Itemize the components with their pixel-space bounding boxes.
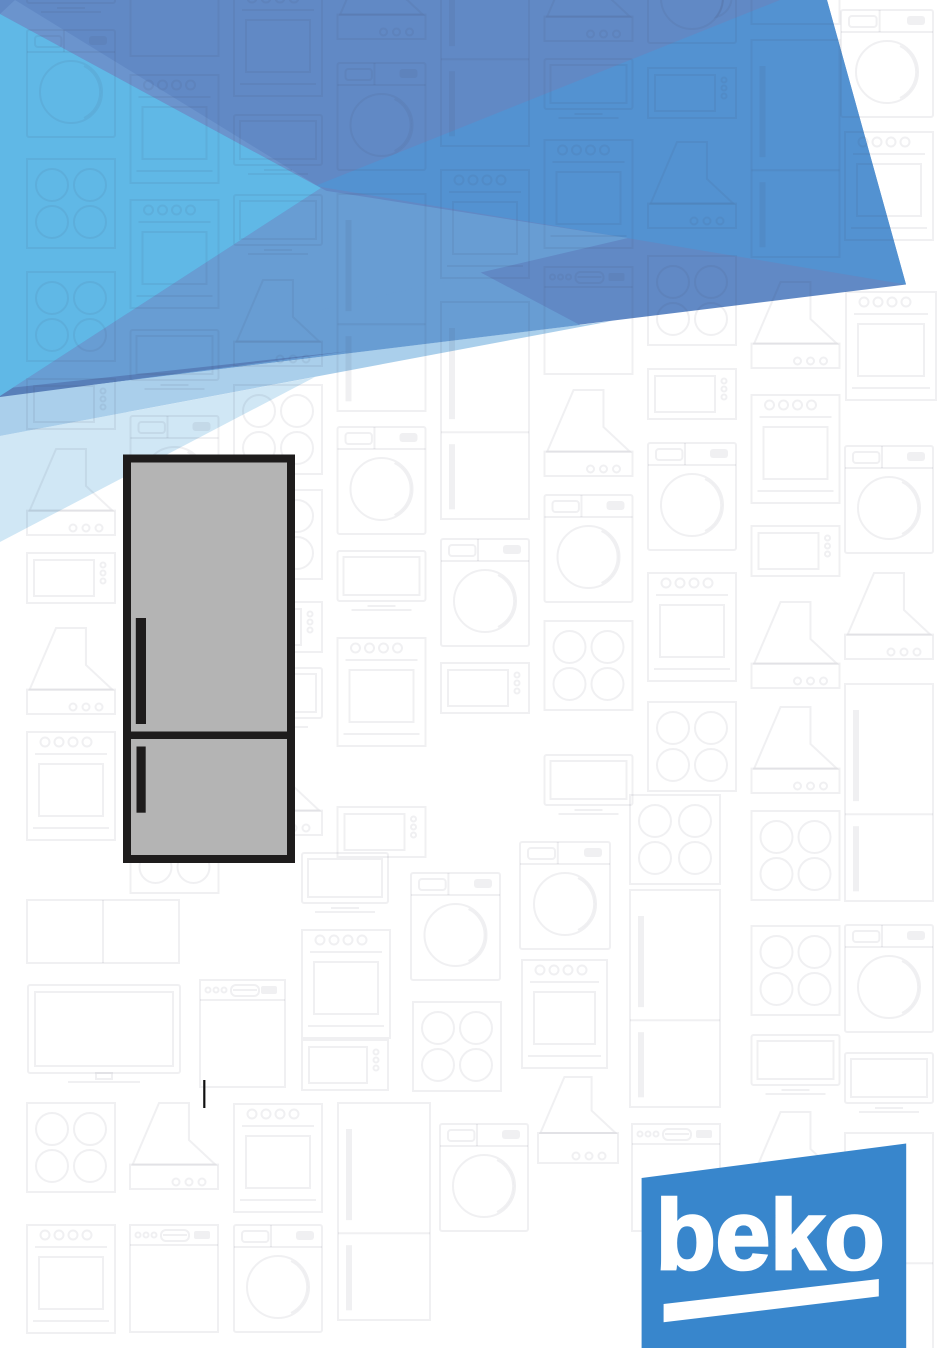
svg-text:beko: beko [656,1179,885,1290]
